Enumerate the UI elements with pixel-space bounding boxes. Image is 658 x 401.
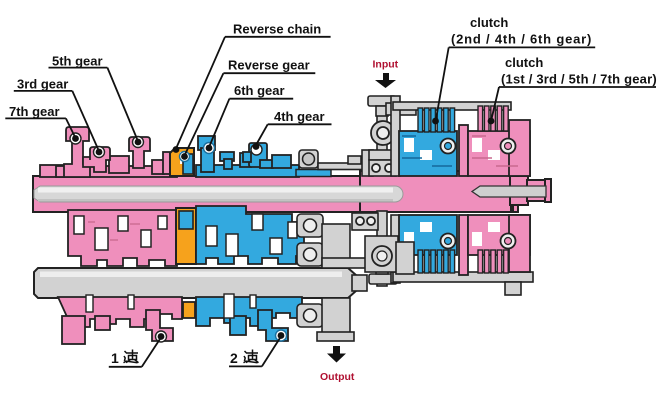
svg-text:Output: Output [320,371,355,383]
svg-text:2: 2 [230,350,238,366]
svg-text:5th gear: 5th gear [52,54,103,69]
svg-text:7th gear: 7th gear [9,104,60,119]
svg-text:Reverse gear: Reverse gear [228,57,310,72]
svg-text:Input: Input [373,59,399,71]
svg-text:4th gear: 4th gear [274,109,325,124]
svg-text:3rd gear: 3rd gear [17,77,68,92]
svg-text:clutch: clutch [505,55,543,70]
svg-text:(1st / 3rd / 5th / 7th gear): (1st / 3rd / 5th / 7th gear) [501,71,657,86]
svg-text:6th gear: 6th gear [234,83,285,98]
svg-text:1: 1 [111,350,119,366]
svg-text:clutch: clutch [470,15,508,30]
svg-text:Reverse chain: Reverse chain [233,22,321,37]
svg-text:(2nd / 4th / 6th gear): (2nd / 4th / 6th gear) [451,32,592,47]
